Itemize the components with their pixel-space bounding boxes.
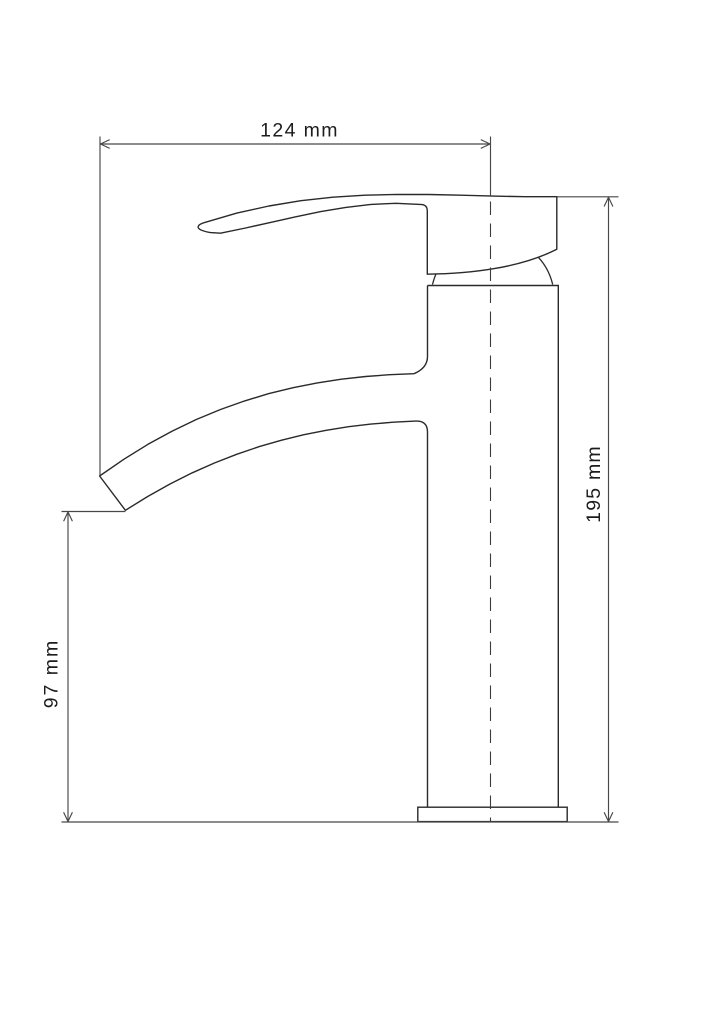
svg-text:124 mm: 124 mm xyxy=(260,120,339,142)
svg-text:97 mm: 97 mm xyxy=(40,639,62,709)
svg-text:195 mm: 195 mm xyxy=(583,445,605,523)
